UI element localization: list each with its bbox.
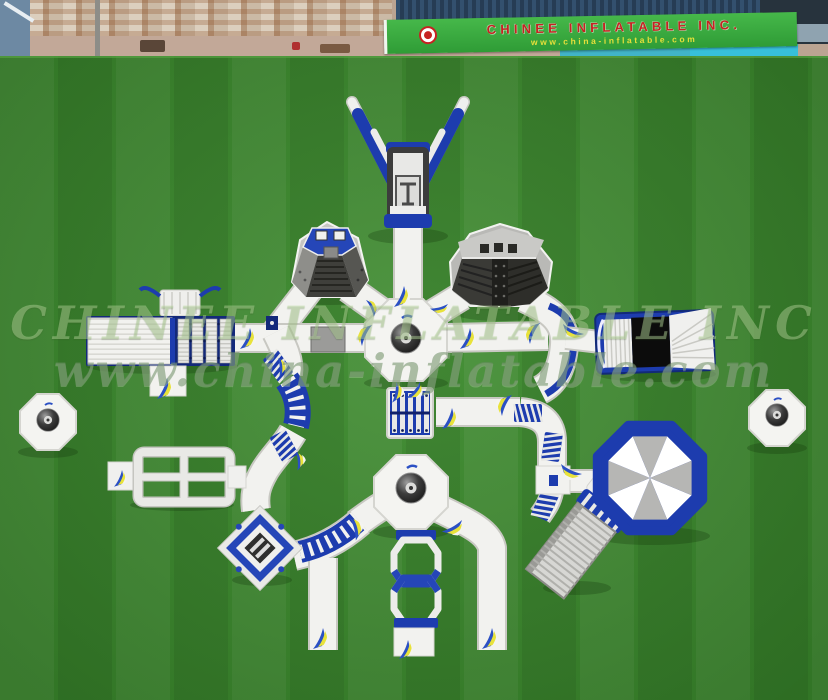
ring-bridge [394, 530, 438, 656]
octagon-left [20, 394, 76, 450]
pyramid-climb-1 [292, 222, 368, 297]
diamond-pad [213, 501, 306, 594]
screenshot-root: CHINEE INFLATABLE INC www.china-inflatab… [0, 0, 828, 700]
platform-mat [88, 318, 172, 364]
roller-platform [86, 288, 235, 396]
ring-exit-pad [394, 628, 434, 656]
walkway-se-down [438, 508, 492, 650]
grid-right-pad [228, 466, 246, 488]
gray-box-pad [311, 327, 345, 352]
tower-slide [352, 102, 464, 228]
umbrella-octagon [597, 425, 702, 530]
pyramid-climb-2 [450, 224, 552, 308]
octagon-right [749, 390, 805, 446]
car-slide [595, 308, 715, 374]
monkey-bar-grid [108, 452, 246, 502]
walkway-east [446, 336, 548, 338]
octagon-bottom [374, 455, 448, 529]
inflatable-water-park [0, 0, 828, 700]
umbrella-wedges [608, 436, 691, 519]
teeth-bridge-left [287, 380, 298, 426]
